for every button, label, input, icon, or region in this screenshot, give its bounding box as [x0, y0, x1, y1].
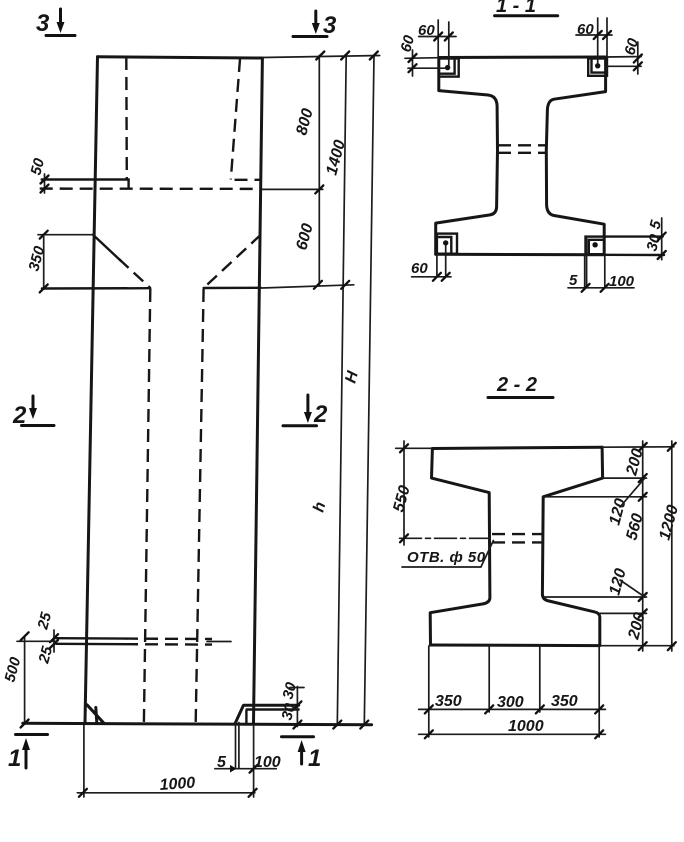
svg-text:3: 3: [36, 10, 50, 37]
svg-text:350: 350: [435, 693, 462, 710]
svg-text:1: 1: [308, 745, 321, 772]
svg-text:5: 5: [569, 272, 578, 289]
svg-text:1000: 1000: [159, 775, 196, 794]
svg-text:100: 100: [254, 754, 281, 771]
svg-text:ОТВ. ф 50: ОТВ. ф 50: [407, 549, 486, 566]
svg-text:2: 2: [313, 401, 328, 428]
svg-text:5: 5: [217, 754, 227, 771]
svg-text:3: 3: [323, 12, 337, 39]
svg-text:1: 1: [8, 745, 21, 772]
svg-text:350: 350: [551, 693, 578, 710]
svg-text:300: 300: [497, 694, 524, 711]
svg-text:2 - 2: 2 - 2: [496, 374, 537, 396]
svg-text:60: 60: [411, 260, 428, 277]
svg-text:1000: 1000: [508, 718, 544, 735]
